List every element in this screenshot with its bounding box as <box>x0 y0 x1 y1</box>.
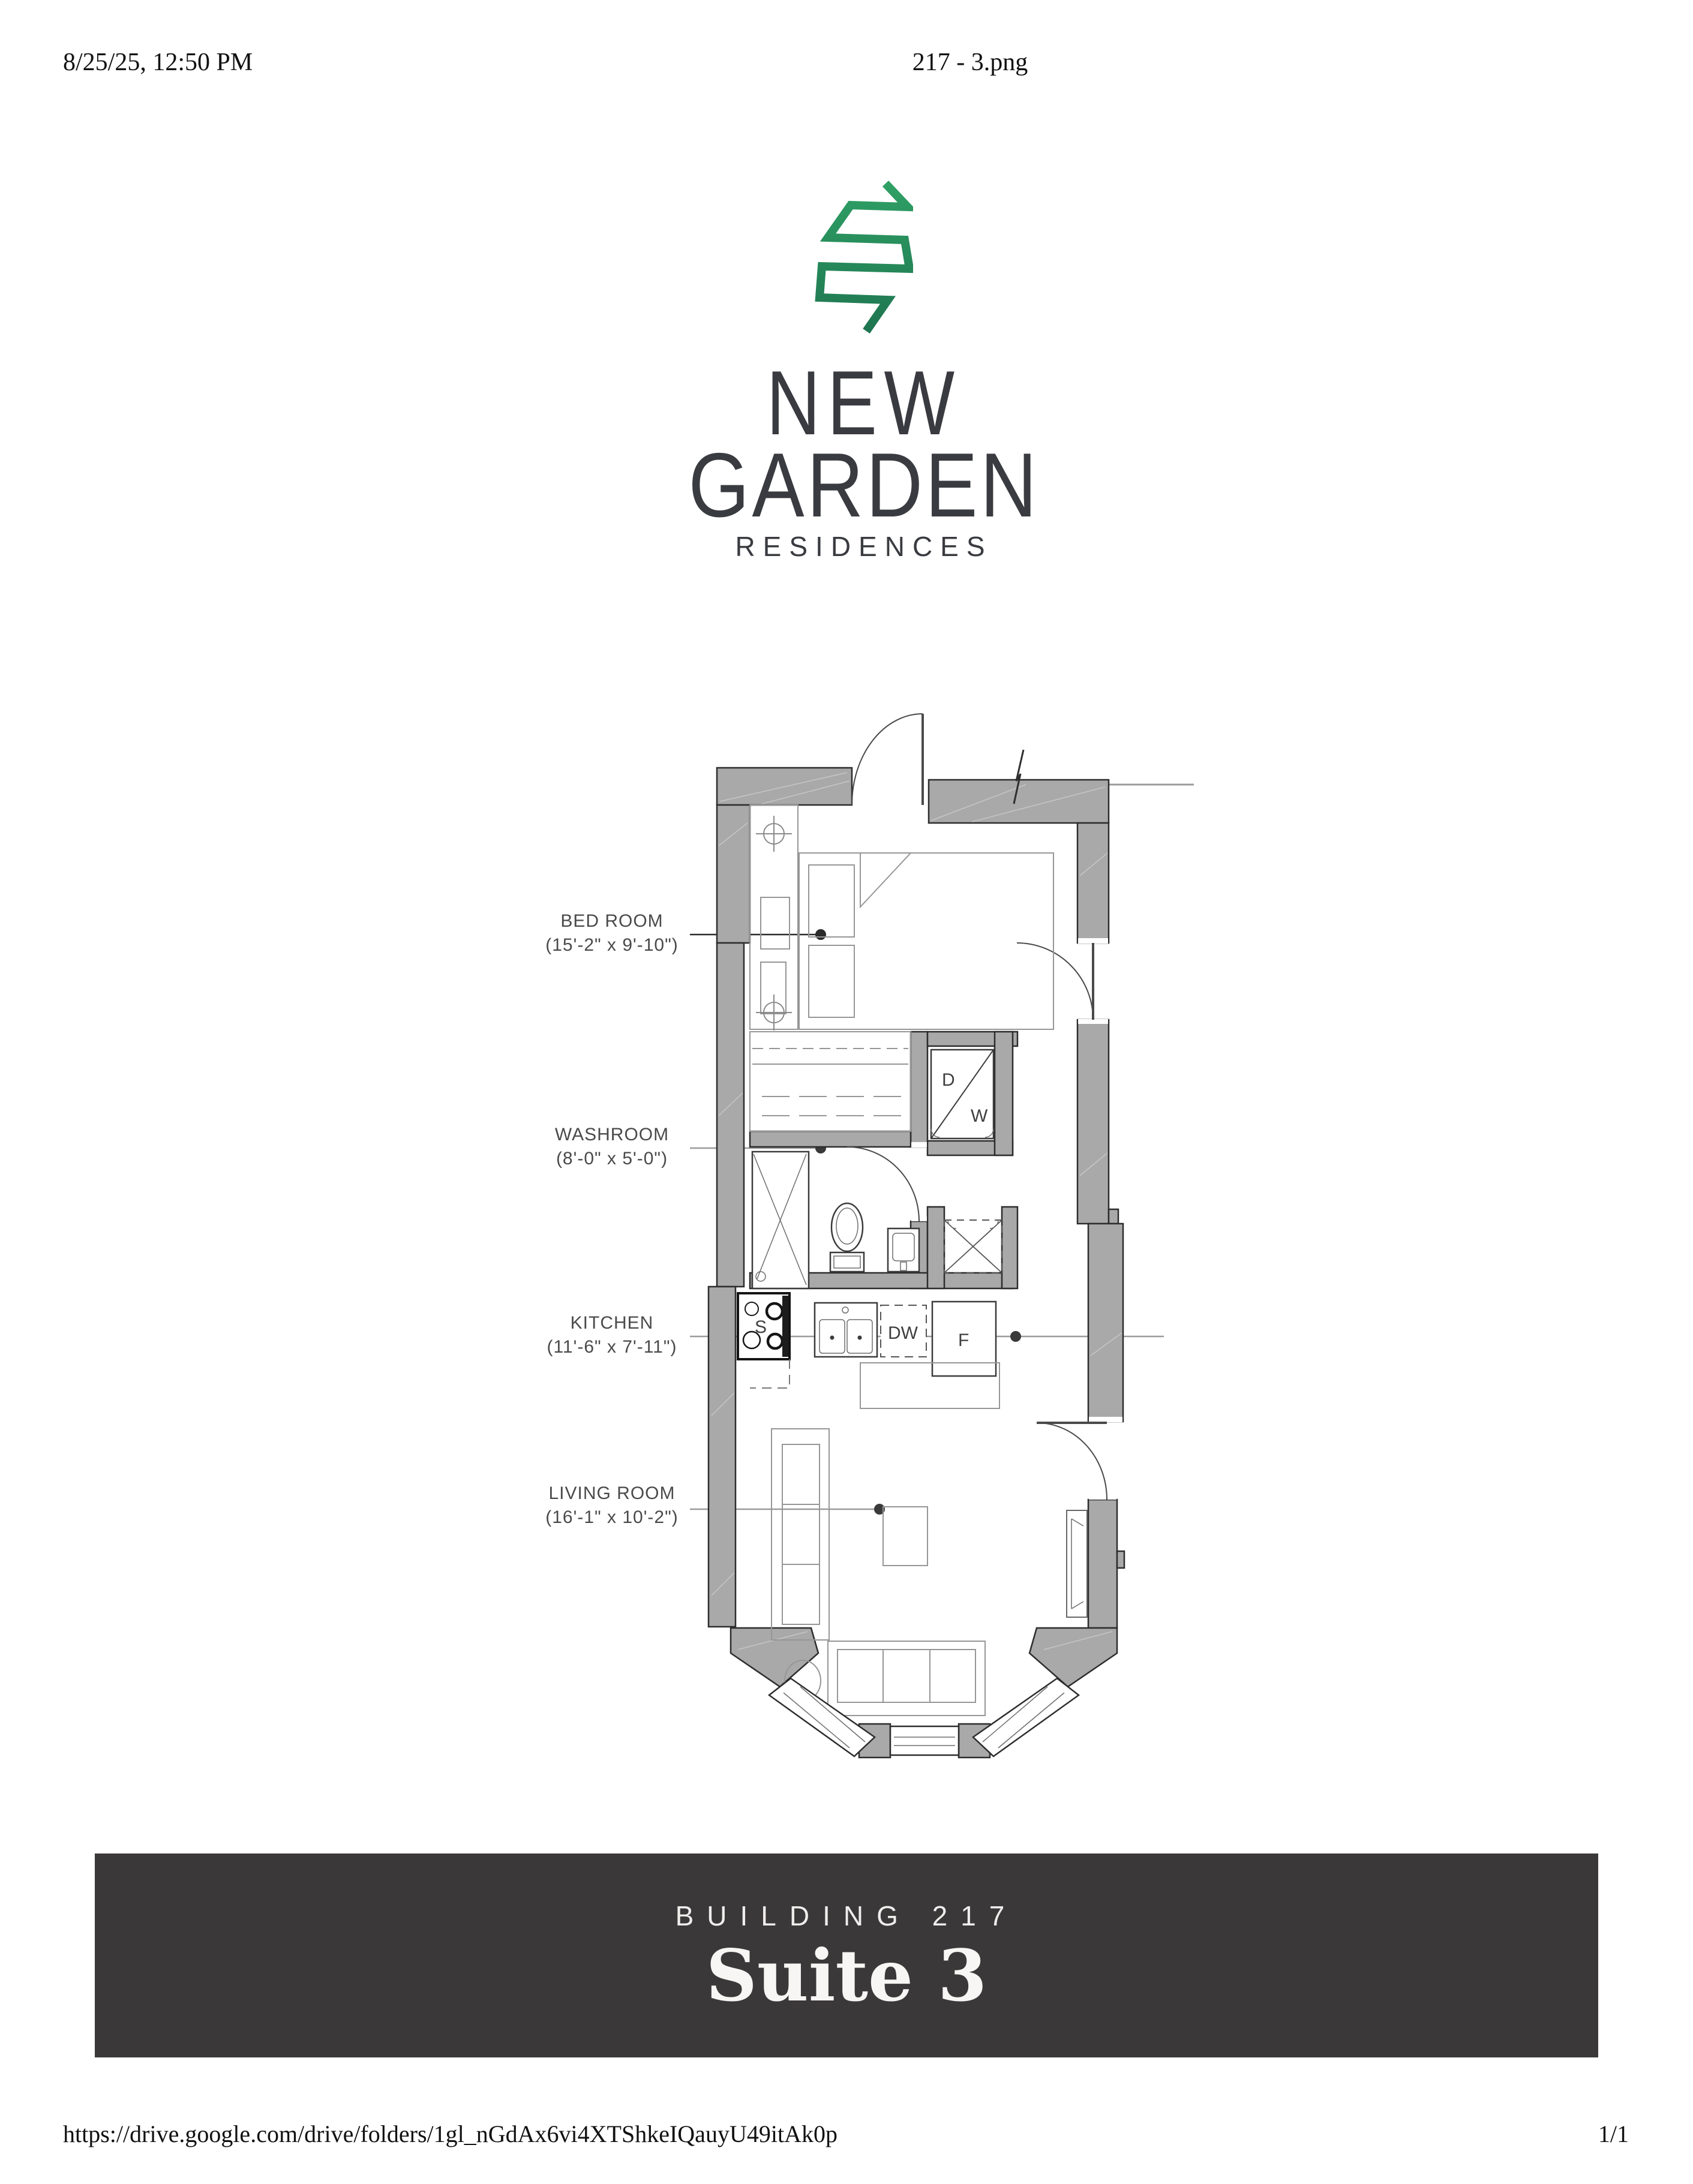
counter-outline <box>750 1359 790 1388</box>
washroom-name: WASHROOM <box>540 1123 684 1147</box>
bay-window <box>769 1678 1079 1756</box>
kitchen-name: KITCHEN <box>540 1311 684 1335</box>
livingroom-door <box>1037 1423 1107 1500</box>
stove-letter: S <box>755 1317 767 1337</box>
livingroom-name: LIVING ROOM <box>540 1482 684 1506</box>
washroom-dims: (8'-0" x 5'-0") <box>540 1147 684 1171</box>
fridge-letter: F <box>958 1330 969 1350</box>
toilet <box>830 1203 864 1272</box>
coffee-table <box>883 1507 927 1566</box>
kitchen-label: KITCHEN (11'-6" x 7'-11") <box>540 1311 684 1359</box>
suite-banner: BUILDING 217 Suite 3 <box>95 1853 1598 2057</box>
dryer-letter: D <box>942 1070 955 1090</box>
fridge: F <box>932 1302 996 1376</box>
washroom-label: WASHROOM (8'-0" x 5'-0") <box>540 1123 684 1171</box>
source-url: https://drive.google.com/drive/folders/1… <box>63 2120 838 2148</box>
bedroom-label: BED ROOM (15'-2" x 9'-10") <box>540 909 684 957</box>
leaf-zigzag-icon <box>815 180 913 335</box>
livingroom-dims: (16'-1" x 10'-2") <box>540 1506 684 1530</box>
entry-door <box>852 714 923 805</box>
shower <box>752 1152 809 1288</box>
washer-letter: W <box>971 1106 988 1126</box>
dishwasher-letters: DW <box>888 1323 918 1343</box>
logo-word-residences: RESIDENCES <box>654 530 1074 563</box>
sofa <box>772 1429 985 1716</box>
print-date: 8/25/25, 12:50 PM <box>63 48 253 77</box>
bedroom-dims: (15'-2" x 9'-10") <box>540 933 684 957</box>
washroom-sink <box>888 1228 919 1272</box>
kitchen-dims: (11'-6" x 7'-11") <box>540 1335 684 1359</box>
dishwasher: DW <box>881 1305 926 1357</box>
wall-niche <box>1067 1510 1087 1617</box>
ceiling-symbol <box>756 816 792 852</box>
floor-plan: D W DW F <box>690 696 1194 1776</box>
print-filename: 217 - 3.png <box>850 48 1090 77</box>
leaf-path <box>820 184 909 331</box>
bed <box>799 853 1053 1029</box>
page-number: 1/1 <box>1598 2120 1629 2148</box>
leader-bedroom <box>690 929 826 940</box>
bedroom-closet <box>750 1032 911 1131</box>
bedroom-name: BED ROOM <box>540 909 684 933</box>
kitchen-sink <box>815 1303 877 1357</box>
linen-closet <box>944 1220 1002 1273</box>
stove: S <box>738 1293 790 1359</box>
printed-page: { "header": { "date": "8/25/25, 12:50 PM… <box>0 0 1693 2184</box>
suite-title: Suite 3 <box>706 1940 987 2011</box>
building-label: BUILDING 217 <box>676 1900 1018 1932</box>
livingroom-label: LIVING ROOM (16'-1" x 10'-2") <box>540 1482 684 1530</box>
logo-word-garden: GARDEN <box>683 433 1044 538</box>
hall-door <box>1017 943 1093 1020</box>
washer-dryer: D W <box>931 1050 993 1138</box>
